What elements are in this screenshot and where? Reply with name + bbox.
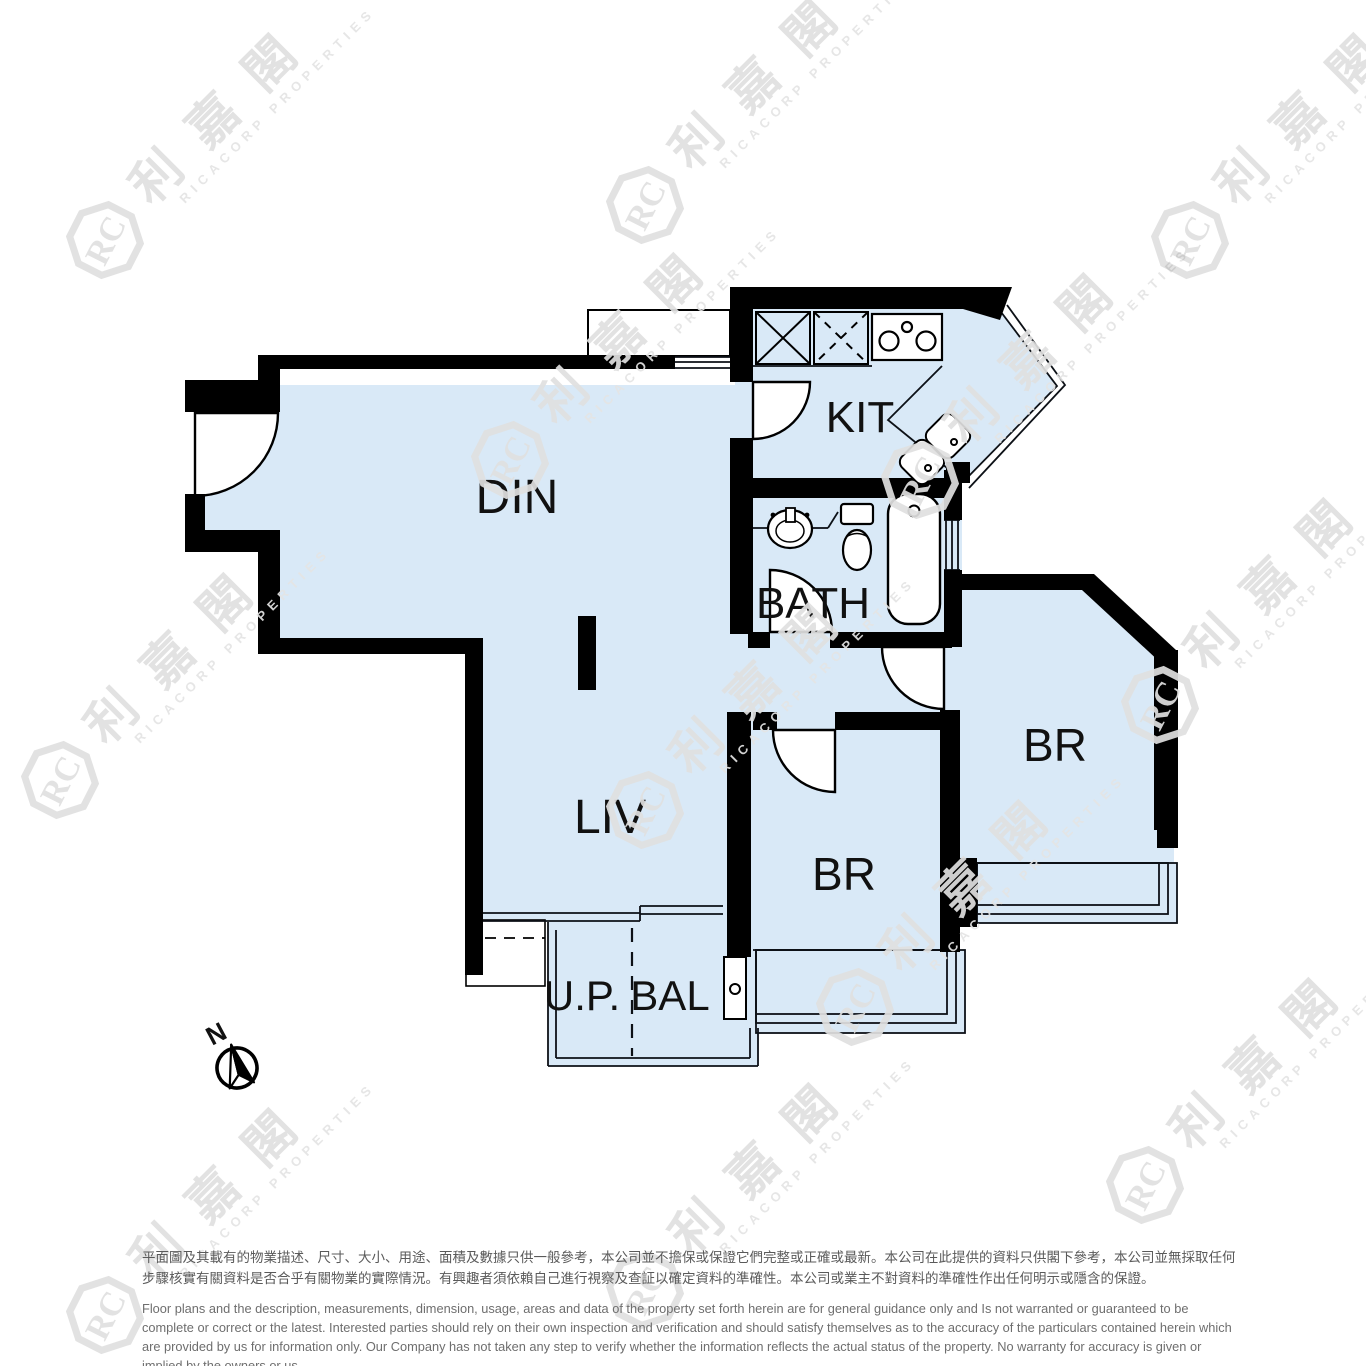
balcony-door — [724, 957, 746, 1019]
room-label-bath: BATH — [756, 579, 870, 628]
stove-icon — [872, 314, 942, 360]
window-din-top — [675, 357, 733, 368]
disclaimer-en: Floor plans and the description, measure… — [142, 1299, 1240, 1366]
room-label-kit: KIT — [826, 393, 894, 442]
room-label-din: DIN — [476, 471, 559, 524]
wash-basin-icon — [768, 508, 812, 548]
room-label-br-right: BR — [1023, 719, 1087, 771]
floor-plan: DIN KIT BATH LIV BR BR U.P. BAL N — [0, 0, 1366, 1366]
window-bath-east — [944, 520, 960, 570]
bathtub-icon — [888, 494, 940, 624]
floor-br-left-bay — [747, 950, 965, 1033]
toilet-icon — [841, 504, 873, 570]
room-label-br-left: BR — [812, 848, 876, 900]
floor-plan-page: DIN KIT BATH LIV BR BR U.P. BAL N RC 利嘉閣… — [0, 0, 1366, 1366]
room-label-bal: BAL — [630, 972, 709, 1019]
compass-icon: N — [201, 1016, 262, 1092]
external-lobby-box — [588, 310, 730, 356]
room-label-liv: LIV — [574, 791, 646, 844]
floor-fills — [205, 295, 1177, 1066]
room-label-up: U.P. — [544, 972, 620, 1019]
compass-north-label: N — [201, 1016, 232, 1051]
disclaimer: 平面圖及其載有的物業描述、尺寸、大小、用途、面積及數據只供一般參考，本公司並不擔… — [142, 1247, 1240, 1366]
disclaimer-zh: 平面圖及其載有的物業描述、尺寸、大小、用途、面積及數據只供一般參考，本公司並不擔… — [142, 1247, 1240, 1290]
floor-liv — [483, 634, 753, 922]
